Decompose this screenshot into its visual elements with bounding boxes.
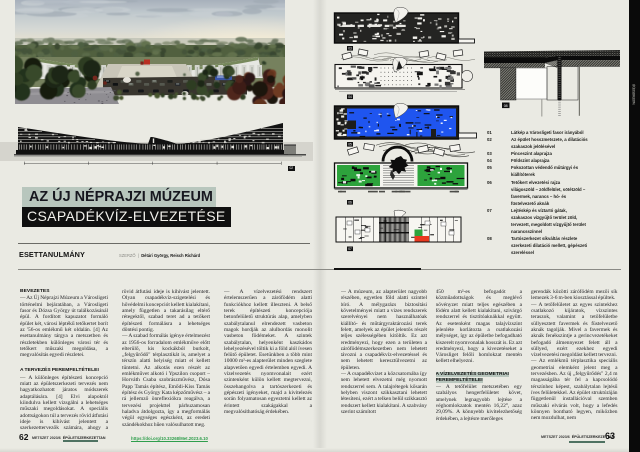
svg-text:07: 07 bbox=[348, 247, 352, 251]
svg-text:05: 05 bbox=[348, 143, 352, 147]
svg-text:04: 04 bbox=[348, 95, 352, 99]
svg-text:03: 03 bbox=[348, 47, 352, 51]
svg-text:06: 06 bbox=[348, 201, 352, 205]
svg-text:08: 08 bbox=[504, 104, 508, 108]
